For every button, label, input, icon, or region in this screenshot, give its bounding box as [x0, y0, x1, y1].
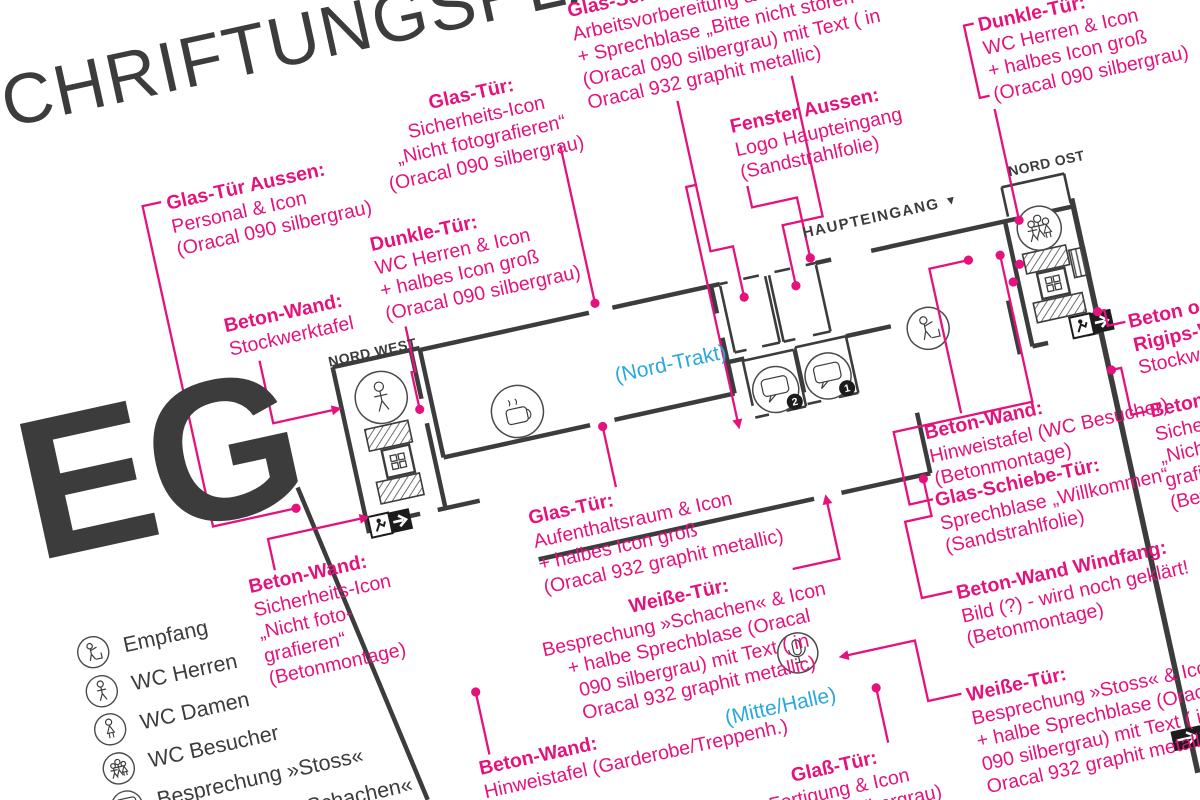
rotated-plan-canvas: 2 1 BESCHRIFTUNGSPLAN EG NORD WEST NORD …	[0, 0, 1200, 800]
elevator-icon	[1037, 268, 1070, 299]
exit-sign-icon	[368, 508, 414, 538]
wc-men-icon	[81, 671, 122, 712]
down-arrow-icon: ▼	[944, 192, 960, 209]
reception-icon	[73, 632, 114, 673]
wc-men-icon	[350, 366, 412, 428]
coffee-lounge-icon	[486, 381, 548, 443]
elevator-icon	[382, 445, 415, 478]
meeting-bubble-2-icon: 2	[748, 362, 804, 418]
beschriftungsplan-page: 2 1 BESCHRIFTUNGSPLAN EG NORD WEST NORD …	[0, 0, 1200, 800]
meeting-bubble-1-icon: 1	[801, 348, 857, 404]
wc-women-icon	[90, 709, 131, 750]
meeting-stoss-icon	[107, 786, 148, 800]
wc-visitors-icon	[98, 748, 139, 789]
